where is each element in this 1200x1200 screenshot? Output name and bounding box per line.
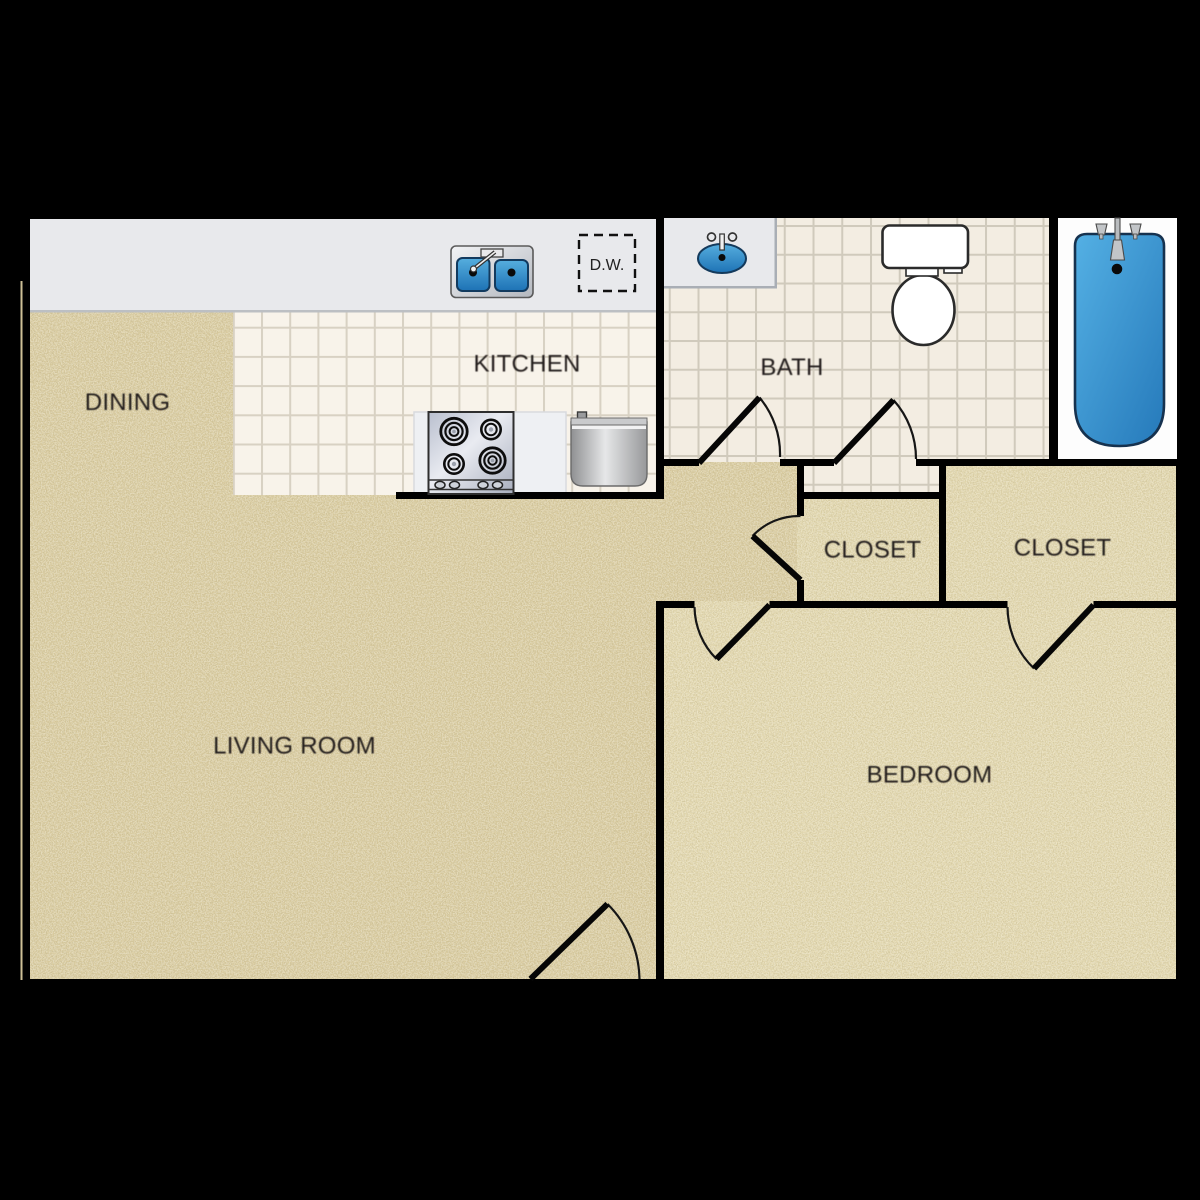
svg-text:LIVING ROOM: LIVING ROOM: [213, 733, 376, 760]
svg-text:D.W.: D.W.: [590, 257, 625, 274]
svg-text:KITCHEN: KITCHEN: [473, 351, 580, 378]
svg-text:CLOSET: CLOSET: [1014, 535, 1112, 562]
svg-text:BEDROOM: BEDROOM: [867, 762, 993, 789]
svg-text:DINING: DINING: [85, 389, 171, 416]
svg-text:BATH: BATH: [760, 354, 823, 381]
svg-text:CLOSET: CLOSET: [824, 537, 922, 564]
